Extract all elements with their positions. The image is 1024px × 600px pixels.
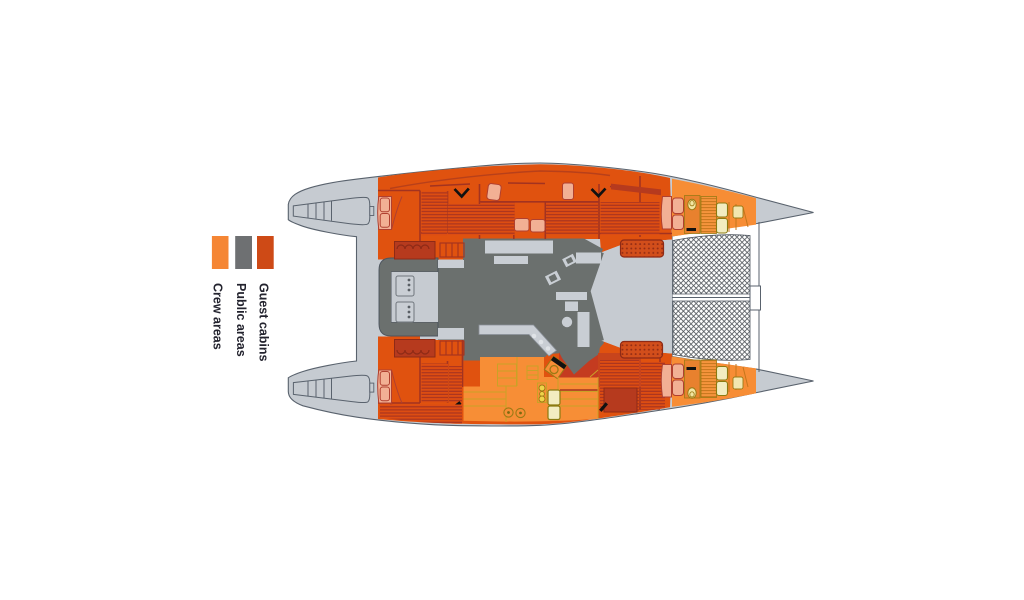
svg-text:Public areas: Public areas xyxy=(234,283,248,357)
svg-text:Guest cabins: Guest cabins xyxy=(257,283,271,362)
svg-text:Crew areas: Crew areas xyxy=(211,283,225,350)
